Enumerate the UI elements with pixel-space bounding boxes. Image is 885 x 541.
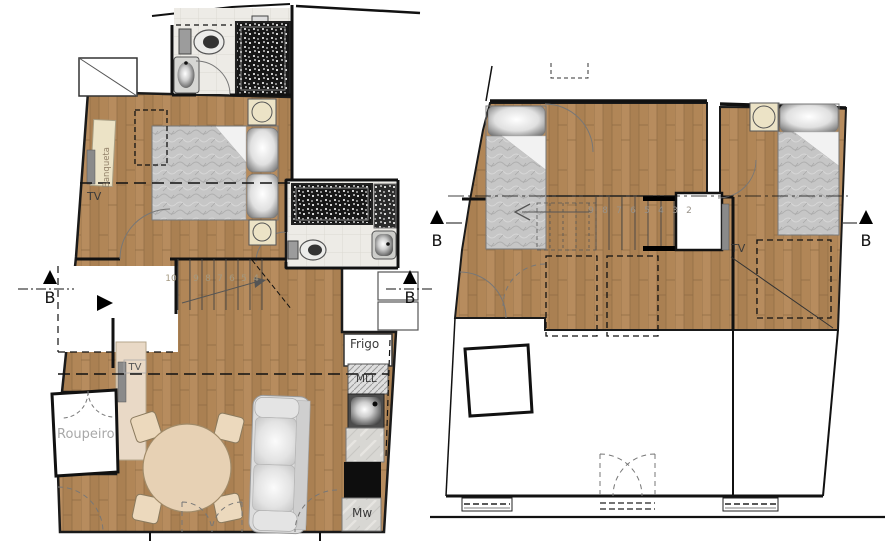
pillow	[247, 128, 278, 172]
label-bedroom-tv: TV	[86, 190, 102, 203]
stair-number: 7	[616, 206, 622, 216]
section-arrow-icon	[43, 270, 57, 284]
label-banqueta: Banqueta	[102, 147, 112, 188]
lower-floor-plan: 10 9 8 7 6 5 4	[18, 4, 434, 541]
nightstand	[248, 99, 276, 125]
living-tv-icon	[118, 362, 126, 402]
stair-rail	[643, 196, 676, 201]
label-living-tv: TV	[128, 362, 142, 373]
stair-number: 3	[672, 206, 678, 216]
section-arrow-icon	[859, 210, 873, 224]
upper-tv-icon	[722, 204, 729, 250]
mosaic-niche	[374, 184, 396, 228]
sink-icon	[372, 231, 396, 259]
window-sill	[723, 498, 778, 511]
stair-number: 10	[165, 274, 177, 284]
bathroom-upper	[172, 5, 292, 97]
entrance-hall-void	[58, 266, 178, 352]
stair-number: 9	[193, 274, 199, 284]
stair-rail	[643, 246, 676, 251]
pillow	[247, 174, 278, 218]
section-marker-b-right: B	[843, 210, 873, 250]
label-upper-tv: TV	[730, 242, 746, 255]
stair-number: 2	[686, 206, 692, 216]
stair-number: 6	[229, 274, 235, 284]
nightstand	[750, 103, 779, 131]
window-sill	[462, 498, 512, 511]
stair-number: 4	[658, 206, 664, 216]
roof-hatch-outline	[551, 63, 588, 78]
stair-number: 8	[602, 206, 608, 216]
label-roupeiro: Roupeiro	[57, 427, 115, 442]
counter	[346, 428, 384, 462]
stairwell-void	[676, 193, 722, 250]
french-door	[600, 454, 655, 509]
pillow	[780, 104, 838, 132]
stair-number: 6	[630, 206, 636, 216]
kitchen-sink-icon	[348, 394, 384, 428]
floor-plan-canvas: 10 9 8 7 6 5 4	[0, 0, 885, 541]
stair-number: 9	[588, 206, 594, 216]
bed-left	[486, 106, 546, 249]
sofa	[249, 395, 311, 534]
stair-number: 5	[241, 274, 247, 284]
stair-number: 7	[217, 274, 223, 284]
stair-number: 4	[253, 274, 259, 284]
section-label: B	[861, 231, 872, 250]
section-label: B	[432, 231, 443, 250]
section-arrow-icon	[430, 210, 444, 224]
section-marker-b-left: B	[430, 210, 462, 250]
kitchen-column	[342, 272, 418, 531]
roof-volume-outline	[465, 345, 532, 416]
round-table	[143, 424, 231, 512]
label-frigo: Frigo	[350, 337, 379, 351]
toilet-icon	[288, 240, 326, 260]
floor-plan-drawing: 10 9 8 7 6 5 4	[0, 0, 885, 541]
stair-number: 8	[205, 274, 211, 284]
skylight-window	[79, 58, 137, 96]
bed-right	[778, 104, 839, 235]
label-mw: Mw	[352, 506, 372, 520]
bedroom-tv-icon	[87, 150, 95, 184]
shower-icon	[292, 184, 372, 224]
pillow	[488, 106, 545, 136]
label-mll: MLL	[356, 373, 377, 385]
section-label: B	[405, 288, 416, 307]
cooktop-icon	[344, 462, 381, 498]
upper-floor-plan: 9 8 7 6 5 4 3 2	[430, 63, 885, 517]
dining-table	[130, 411, 245, 525]
nightstand	[249, 220, 276, 245]
section-label: B	[45, 288, 56, 307]
shower-icon	[236, 16, 290, 95]
sink-icon	[174, 57, 199, 93]
stair-number: 5	[644, 206, 650, 216]
toilet-icon	[179, 29, 224, 54]
